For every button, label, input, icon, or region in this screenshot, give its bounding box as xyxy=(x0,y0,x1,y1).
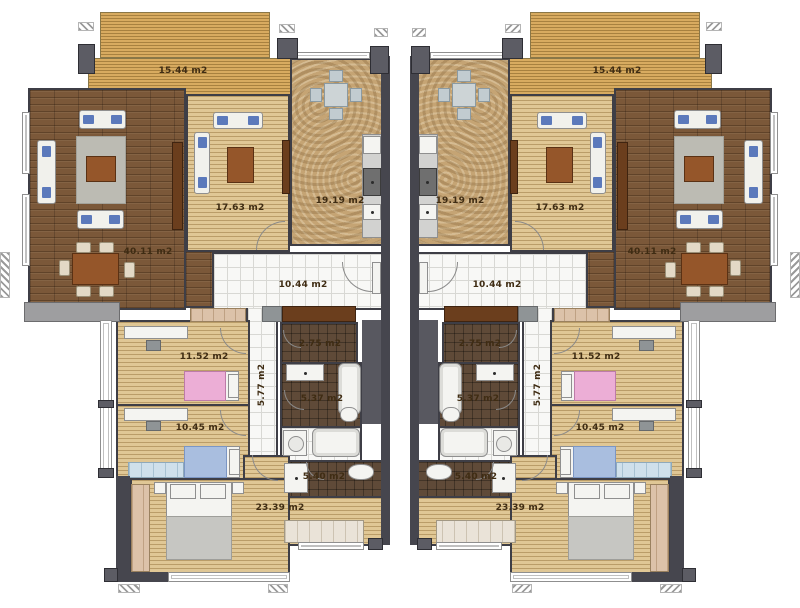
bathtub xyxy=(440,428,488,457)
dining-chair xyxy=(99,286,114,297)
room-label-kitchen: 19.19 m2 xyxy=(418,195,502,207)
master-bottom-wall xyxy=(630,572,684,582)
wall-pillar xyxy=(686,400,702,408)
room-label-living: 40.11 m2 xyxy=(106,246,190,258)
insulation-hatch xyxy=(706,22,722,31)
bed-pillow xyxy=(560,449,571,475)
fridge xyxy=(363,136,381,154)
room-label-bedroom-b: 10.45 m2 xyxy=(558,422,642,434)
entry-door-leaf xyxy=(372,262,381,294)
sink-drain xyxy=(304,372,307,375)
kitchen-chair xyxy=(457,70,471,82)
sofa-cushion xyxy=(708,215,719,224)
window xyxy=(770,112,778,174)
sofa-cushion xyxy=(749,146,758,157)
room-label-bath-a: 5.37 m2 xyxy=(280,393,364,405)
dining-chair xyxy=(709,286,724,297)
washing-machine xyxy=(493,430,517,456)
nightstand xyxy=(232,482,244,494)
sofa-cushion xyxy=(593,137,602,148)
hall-wardrobe xyxy=(282,306,356,322)
washer-drum xyxy=(496,436,512,452)
window-band xyxy=(100,320,112,476)
sofa xyxy=(676,210,723,229)
nightstand xyxy=(556,482,568,494)
living-room-floor-ext xyxy=(586,250,614,308)
room-label-lounge: 17.63 m2 xyxy=(198,202,282,214)
master-bottom-wall xyxy=(116,572,170,582)
master-left-wall xyxy=(116,476,130,580)
sofa-cushion xyxy=(83,115,94,124)
sofa xyxy=(590,132,606,194)
insulation-hatch xyxy=(660,584,682,593)
kitchen-chair xyxy=(457,108,471,120)
bed-blanket-gray xyxy=(166,516,232,560)
insulation-hatch xyxy=(374,28,388,37)
insulation-hatch xyxy=(0,252,10,298)
room-label-hall: 10.44 m2 xyxy=(455,279,539,291)
wall-pillar xyxy=(98,400,114,408)
bed-blanket-pink xyxy=(574,371,616,401)
sofa xyxy=(79,110,126,129)
room-label-corridor: 5.77 m2 xyxy=(256,343,268,427)
window xyxy=(168,572,290,582)
sofa-cushion xyxy=(217,116,228,125)
apartment-unit-left: 15.44 m2 40.11 m2 17.63 m2 19.19 m2 10.4… xyxy=(0,0,400,608)
lounge-cabinet xyxy=(510,140,518,194)
coffee-table xyxy=(86,156,116,182)
dining-chair xyxy=(124,262,135,278)
hall-cabinet-gray xyxy=(518,306,538,322)
wall-pillar xyxy=(705,44,722,74)
room-label-bedroom-a: 11.52 m2 xyxy=(554,351,638,363)
bed-pillow xyxy=(561,374,572,398)
sofa xyxy=(213,112,263,129)
insulation-hatch xyxy=(268,584,288,593)
sofa-cushion xyxy=(248,116,259,125)
wall-pillar xyxy=(104,568,118,582)
sofa-cushion xyxy=(593,177,602,188)
washing-machine xyxy=(283,430,307,456)
bathroom-sink xyxy=(476,364,514,381)
window-band xyxy=(688,320,700,476)
room-label-bedroom-b: 10.45 m2 xyxy=(158,422,242,434)
fridge xyxy=(419,136,437,154)
window xyxy=(430,52,506,59)
sofa-cushion xyxy=(109,215,120,224)
hall-wardrobe xyxy=(444,306,518,322)
shelf xyxy=(612,326,676,339)
shelf xyxy=(124,326,188,339)
window xyxy=(22,194,30,266)
room-label-lounge: 17.63 m2 xyxy=(518,202,602,214)
insulation-hatch xyxy=(512,584,532,593)
sofa-cushion xyxy=(42,146,51,157)
party-wall xyxy=(381,56,390,545)
room-label-terrace: 15.44 m2 xyxy=(575,65,659,77)
window xyxy=(294,52,370,59)
sofa xyxy=(37,140,56,204)
sink-drain xyxy=(426,211,429,214)
toilet xyxy=(340,407,358,422)
room-label-wc: 2.75 m2 xyxy=(278,338,362,350)
bed-blanket-gray xyxy=(568,516,634,560)
room-label-bath-b: 5.40 m2 xyxy=(434,471,518,483)
room-label-bath-b: 5.40 m2 xyxy=(282,471,366,483)
sofa-cushion xyxy=(706,115,717,124)
room-label-bedroom-a: 11.52 m2 xyxy=(162,351,246,363)
kitchen-table xyxy=(324,83,348,107)
insulation-hatch xyxy=(279,24,295,33)
balcony-strip xyxy=(680,302,776,322)
sofa xyxy=(674,110,721,129)
wall-pillar xyxy=(502,38,523,59)
sofa xyxy=(77,210,124,229)
master-left-wall xyxy=(670,476,684,580)
dining-chair xyxy=(665,262,676,278)
nightstand xyxy=(154,482,166,494)
apartment-unit-right: 15.44 m2 40.11 m2 17.63 m2 19.19 m2 10.4… xyxy=(400,0,800,608)
window xyxy=(770,194,778,266)
nightstand xyxy=(634,482,646,494)
duct-shaft xyxy=(417,320,438,424)
kitchen-chair xyxy=(438,88,450,102)
dining-chair xyxy=(76,242,91,253)
wall-pillar xyxy=(682,568,696,582)
wall-pillar xyxy=(78,44,95,74)
kitchen-chair xyxy=(478,88,490,102)
wardrobe xyxy=(128,462,184,478)
wall-pillar xyxy=(370,46,389,74)
living-room-floor-ext xyxy=(186,250,214,308)
tv-cabinet xyxy=(617,142,628,230)
kitchen-chair xyxy=(310,88,322,102)
sofa-cushion xyxy=(678,115,689,124)
wall-pillar xyxy=(686,468,702,478)
wardrobe xyxy=(650,484,669,572)
wardrobe xyxy=(284,520,364,543)
room-label-living: 40.11 m2 xyxy=(610,246,694,258)
bed-blanket-blue xyxy=(573,446,616,478)
sofa xyxy=(194,132,210,194)
bathtub xyxy=(312,428,360,457)
lounge-cabinet xyxy=(282,140,290,194)
dining-chair xyxy=(59,260,70,276)
wardrobe xyxy=(131,484,150,572)
toilet xyxy=(442,407,460,422)
dining-chair xyxy=(76,286,91,297)
sofa-cushion xyxy=(198,137,207,148)
desk xyxy=(146,340,161,351)
window xyxy=(298,542,364,550)
bed-blanket-pink xyxy=(184,371,226,401)
wardrobe xyxy=(616,462,672,478)
party-wall xyxy=(410,56,419,545)
entry-door-leaf xyxy=(419,262,428,294)
terrace-deck-upper xyxy=(100,12,270,58)
room-label-corridor: 5.77 m2 xyxy=(532,343,544,427)
sofa xyxy=(537,112,587,129)
wall-pillar xyxy=(277,38,298,59)
kitchen-chair xyxy=(329,108,343,120)
room-label-kitchen: 19.19 m2 xyxy=(298,195,382,207)
sofa-cushion xyxy=(541,116,552,125)
floor-plan: 15.44 m2 40.11 m2 17.63 m2 19.19 m2 10.4… xyxy=(0,0,800,608)
room-label-bath-a: 5.37 m2 xyxy=(436,393,520,405)
insulation-hatch xyxy=(118,584,140,593)
sofa-cushion xyxy=(572,116,583,125)
bed-pillow xyxy=(574,484,600,499)
room-label-terrace: 15.44 m2 xyxy=(141,65,225,77)
sink-drain xyxy=(493,372,496,375)
sofa-cushion xyxy=(81,215,92,224)
wall-pillar xyxy=(417,538,432,550)
sofa-cushion xyxy=(680,215,691,224)
terrace-deck-upper xyxy=(530,12,700,58)
sofa xyxy=(744,140,763,204)
sink-drain xyxy=(371,211,374,214)
bed-pillow xyxy=(200,484,226,499)
hall-closet xyxy=(190,308,246,322)
desk xyxy=(639,340,654,351)
bathroom-sink xyxy=(286,364,324,381)
bed-blanket-blue xyxy=(184,446,227,478)
bed-pillow xyxy=(228,374,239,398)
tv-cabinet xyxy=(172,142,183,230)
hall-closet xyxy=(554,308,610,322)
stove xyxy=(363,168,381,196)
stove-burner xyxy=(371,181,374,184)
lounge-table xyxy=(546,147,573,183)
sofa-cushion xyxy=(749,187,758,198)
lounge-table xyxy=(227,147,254,183)
shelf xyxy=(124,408,188,421)
dining-chair xyxy=(709,242,724,253)
coffee-table xyxy=(684,156,714,182)
washer-drum xyxy=(288,436,304,452)
hall-cabinet-gray xyxy=(262,306,282,322)
bed-pillow xyxy=(170,484,196,499)
room-label-master: 23.39 m2 xyxy=(478,502,562,514)
dining-chair xyxy=(686,286,701,297)
room-label-master: 23.39 m2 xyxy=(238,502,322,514)
bed-pillow xyxy=(604,484,630,499)
stove-burner xyxy=(426,181,429,184)
insulation-hatch xyxy=(78,22,94,31)
room-label-wc: 2.75 m2 xyxy=(438,338,522,350)
dining-chair xyxy=(730,260,741,276)
wall-pillar xyxy=(411,46,430,74)
kitchen-chair xyxy=(329,70,343,82)
shelf xyxy=(612,408,676,421)
wall-pillar xyxy=(368,538,383,550)
window xyxy=(510,572,632,582)
kitchen-chair xyxy=(350,88,362,102)
wardrobe xyxy=(436,520,516,543)
sofa-cushion xyxy=(42,187,51,198)
sofa-cushion xyxy=(111,115,122,124)
insulation-hatch xyxy=(505,24,521,33)
kitchen-table xyxy=(452,83,476,107)
bed-pillow xyxy=(229,449,240,475)
window xyxy=(22,112,30,174)
stove xyxy=(419,168,437,196)
balcony-strip xyxy=(24,302,120,322)
duct-shaft xyxy=(362,320,383,424)
sofa-cushion xyxy=(198,177,207,188)
wall-pillar xyxy=(98,468,114,478)
insulation-hatch xyxy=(412,28,426,37)
insulation-hatch xyxy=(790,252,800,298)
window xyxy=(436,542,502,550)
room-label-hall: 10.44 m2 xyxy=(261,279,345,291)
